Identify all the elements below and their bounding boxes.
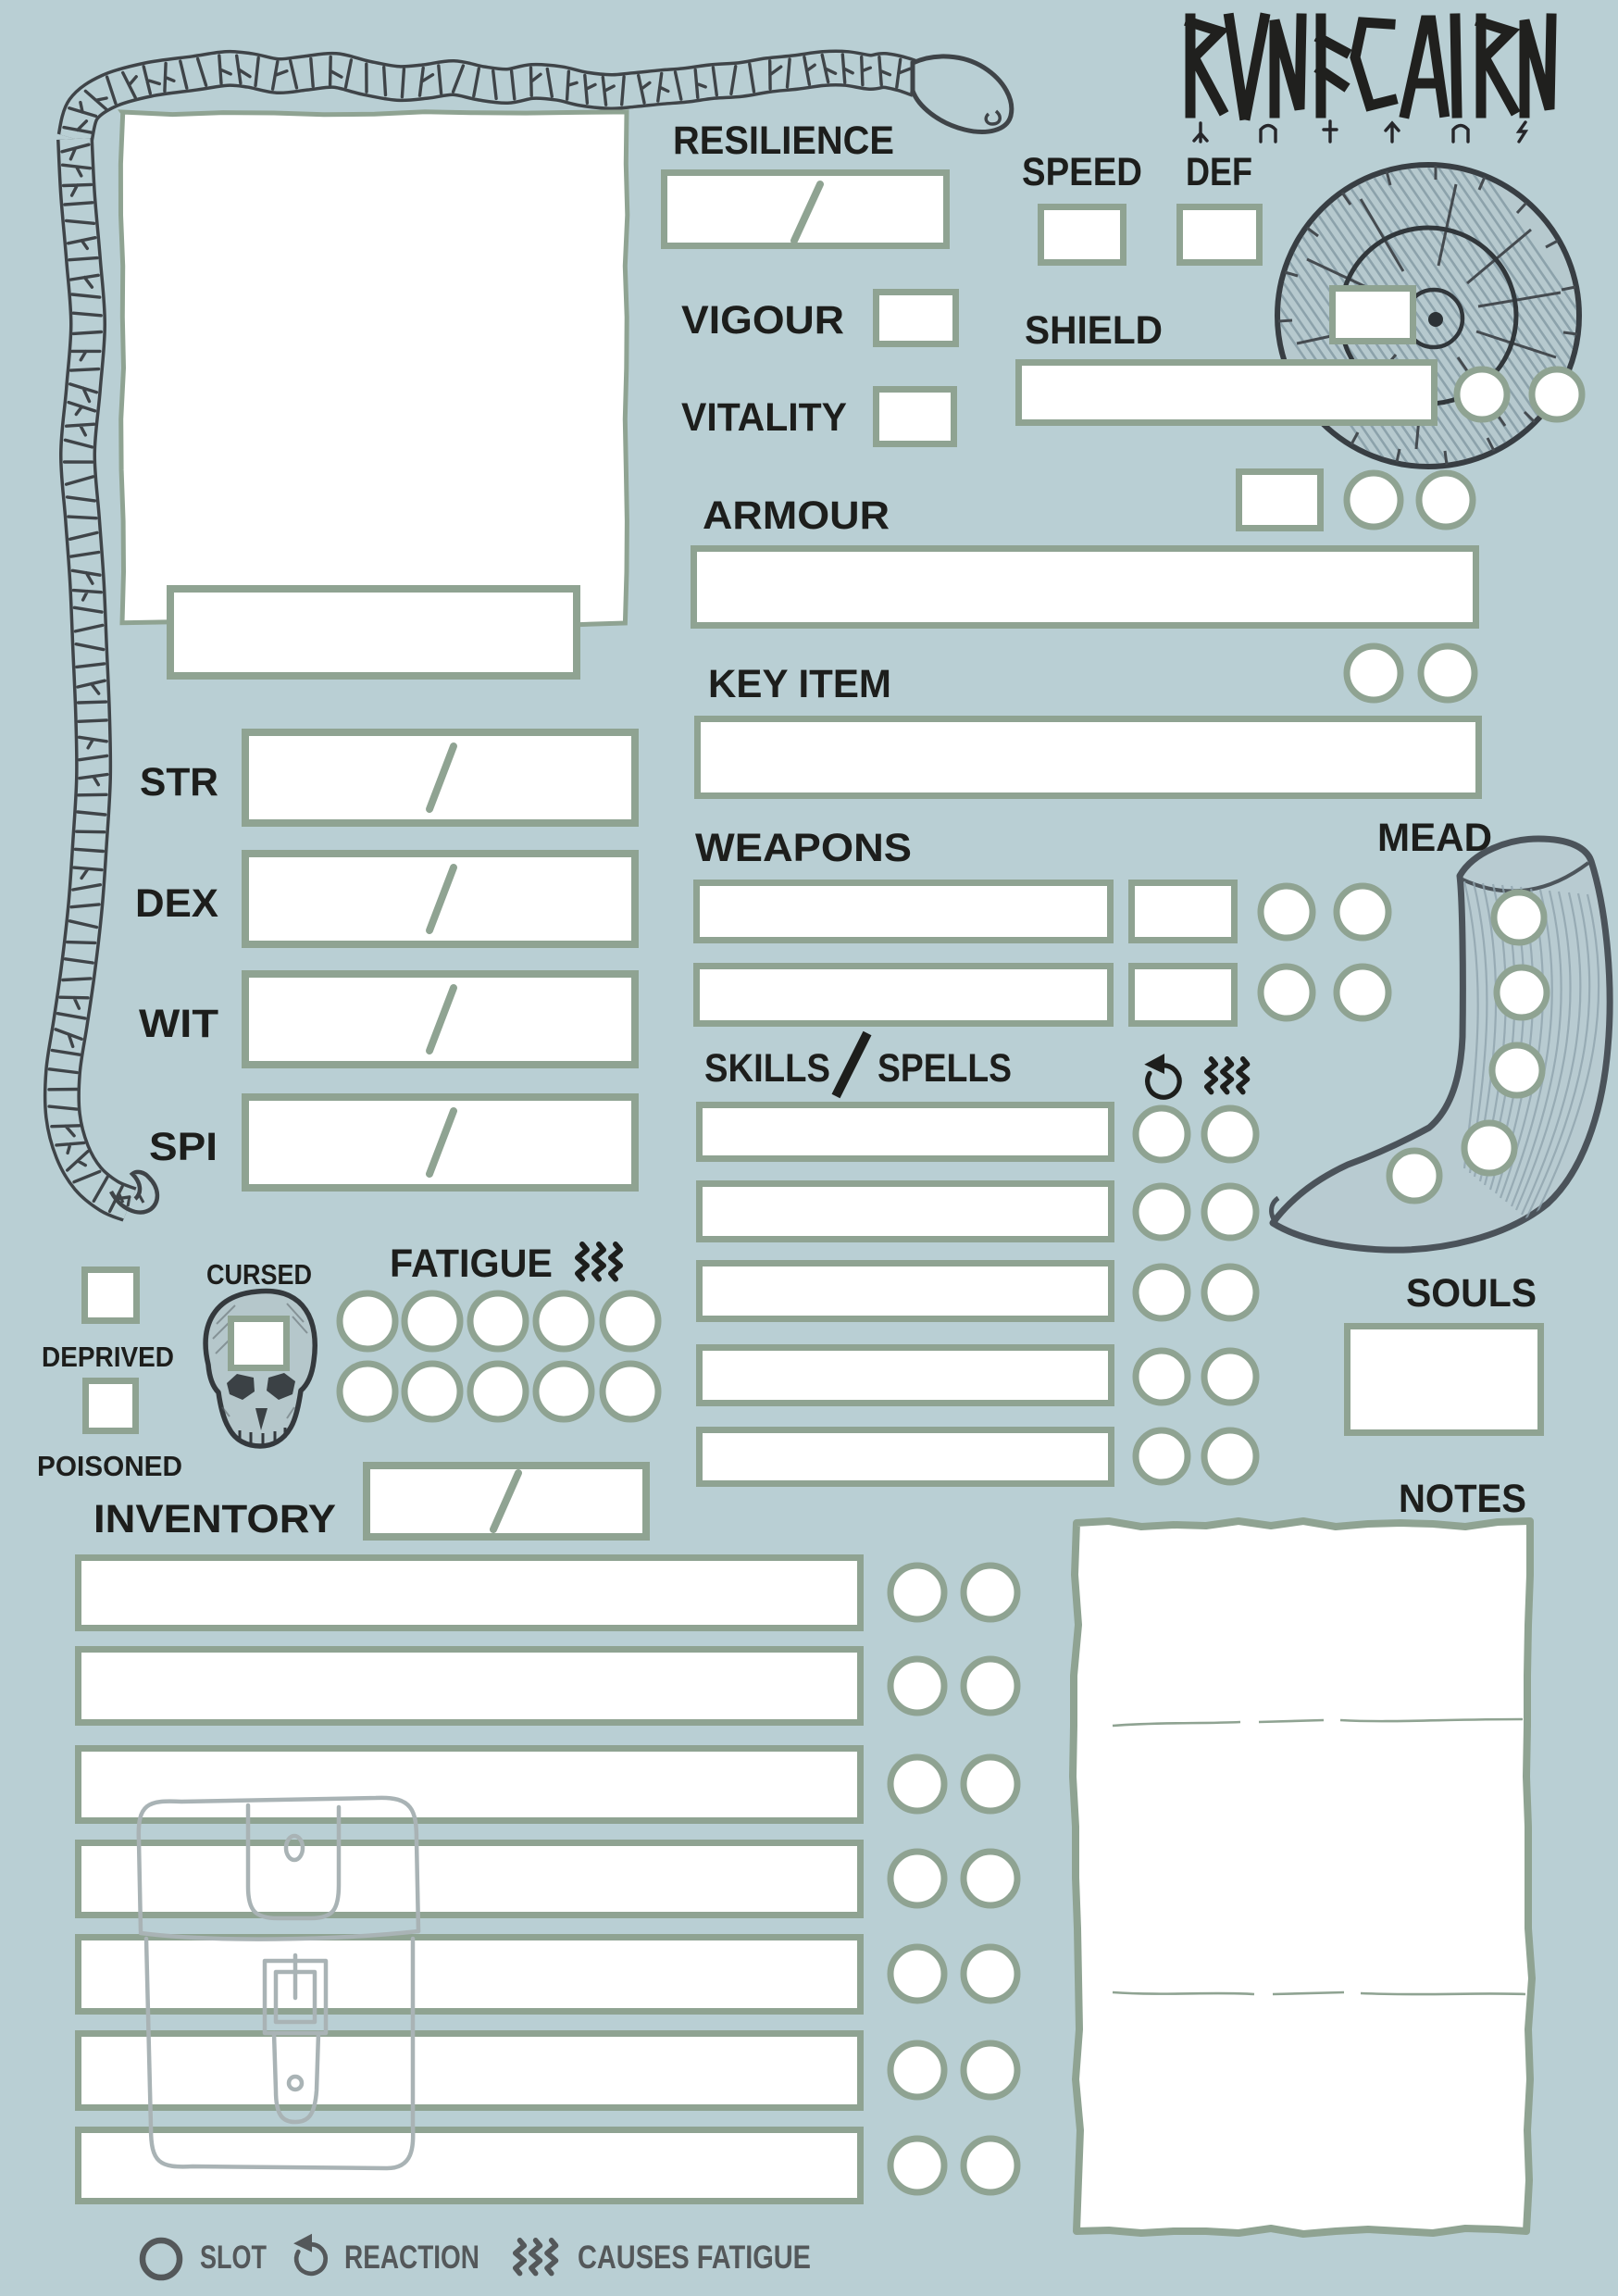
svg-text:STR: STR	[140, 760, 218, 805]
svg-text:DEPRIVED: DEPRIVED	[42, 1341, 174, 1373]
svg-text:RESILIENCE: RESILIENCE	[673, 119, 894, 163]
svg-text:DEF: DEF	[1186, 150, 1252, 194]
svg-text:KEY ITEM: KEY ITEM	[708, 662, 891, 706]
svg-text:WEAPONS: WEAPONS	[695, 826, 912, 870]
svg-text:SOULS: SOULS	[1406, 1271, 1537, 1316]
svg-text:SLOT: SLOT	[200, 2240, 267, 2276]
svg-text:SPELLS: SPELLS	[877, 1046, 1012, 1091]
svg-text:SPI: SPI	[149, 1125, 218, 1169]
svg-text:SHIELD: SHIELD	[1025, 308, 1163, 353]
svg-text:FATIGUE: FATIGUE	[390, 1242, 553, 1286]
svg-text:ARMOUR: ARMOUR	[703, 493, 890, 538]
svg-text:CAUSES FATIGUE: CAUSES FATIGUE	[578, 2240, 811, 2276]
svg-text:MEAD: MEAD	[1377, 816, 1492, 860]
svg-text:INVENTORY: INVENTORY	[93, 1497, 336, 1541]
svg-text:SKILLS: SKILLS	[704, 1046, 830, 1091]
svg-text:VITALITY: VITALITY	[681, 395, 847, 440]
svg-text:VIGOUR: VIGOUR	[681, 298, 844, 343]
svg-text:SPEED: SPEED	[1022, 150, 1142, 194]
svg-text:CURSED: CURSED	[206, 1258, 312, 1291]
svg-text:DEX: DEX	[135, 881, 218, 926]
svg-text:REACTION: REACTION	[344, 2240, 479, 2276]
svg-text:NOTES: NOTES	[1399, 1477, 1526, 1521]
svg-text:POISONED: POISONED	[37, 1450, 182, 1482]
svg-text:WIT: WIT	[139, 1002, 218, 1046]
